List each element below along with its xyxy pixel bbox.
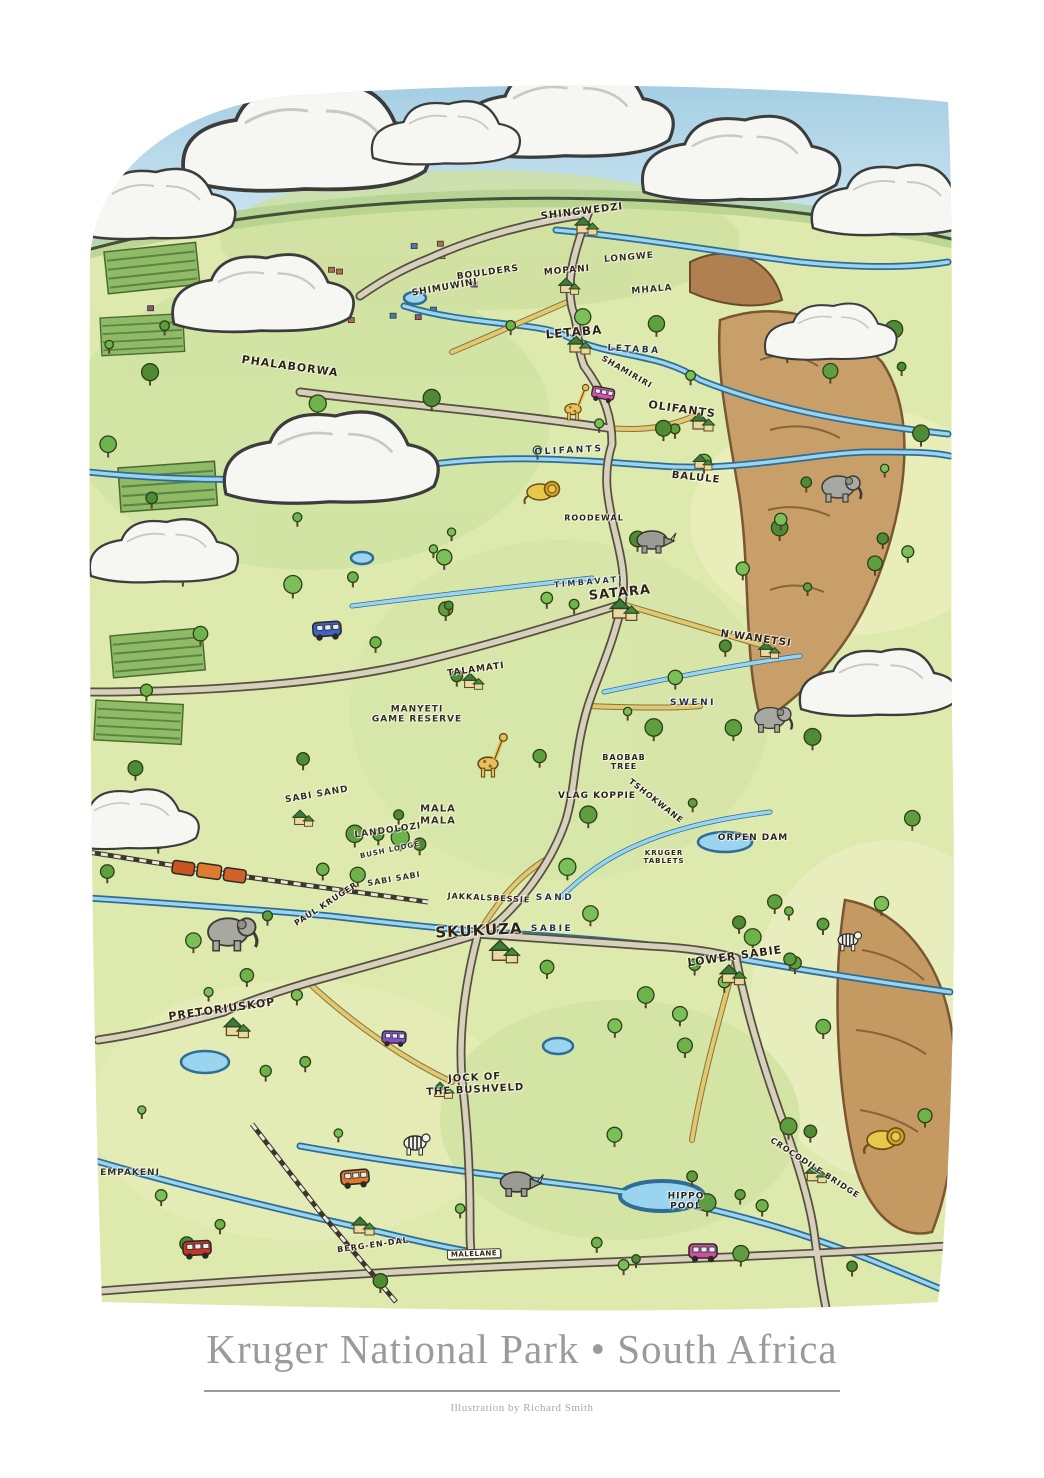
poster-title: Kruger National Park • South Africa	[0, 1325, 1044, 1373]
poster: SHINGWEDZILONGWEMHALABOULDERSSHIMUWINIMO…	[0, 0, 1044, 1478]
map-artwork	[0, 0, 1044, 1478]
poster-footer: Kruger National Park • South Africa Illu…	[0, 1325, 1044, 1414]
poster-credit: Illustration by Richard Smith	[0, 1402, 1044, 1414]
map-illustration: SHINGWEDZILONGWEMHALABOULDERSSHIMUWINIMO…	[0, 0, 1044, 1478]
footer-rule	[204, 1390, 840, 1392]
